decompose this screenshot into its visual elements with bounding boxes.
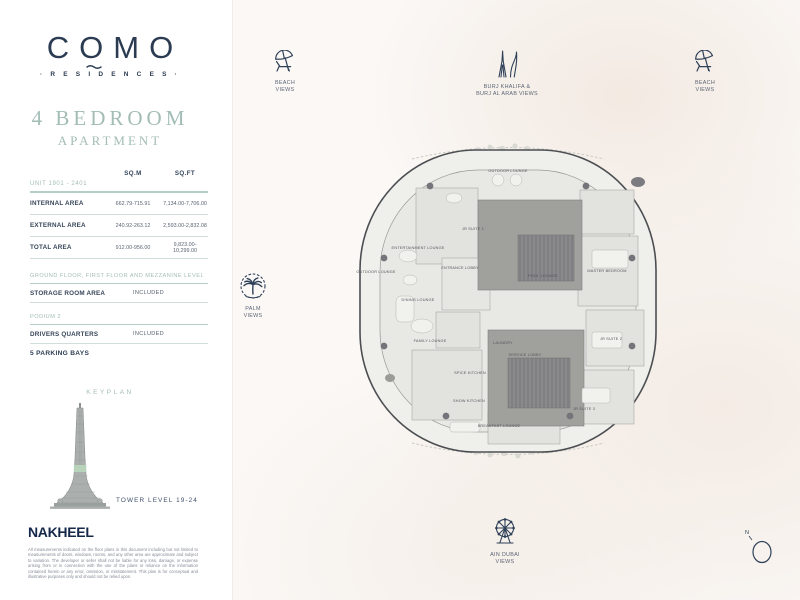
palm-jumeirah-icon: [236, 272, 270, 302]
como-logo-word: COMO: [40, 30, 190, 66]
row-sqft: 2,593.00-2,832.08: [162, 223, 208, 229]
view-marker-label: BEACH VIEWS: [695, 80, 715, 94]
room-label: OUTDOOR LOUNGE: [356, 270, 396, 274]
section-title: PODIUM 2: [30, 312, 208, 325]
view-marker-label: BEACH VIEWS: [275, 80, 295, 94]
view-label-line1: PALM: [244, 306, 263, 313]
room-label: SERVICE LOBBY: [509, 353, 542, 357]
view-marker-label: PALM VIEWS: [244, 306, 263, 320]
burj-khalifa-al-arab-icon: [492, 48, 522, 80]
room-label: JR SUITE 2: [600, 337, 622, 341]
view-marker-beach-left: BEACH VIEWS: [259, 50, 311, 94]
tower-base-platform: [54, 503, 106, 507]
extra-areas: GROUND FLOOR, FIRST FLOOR AND MEZZANINE …: [30, 271, 208, 344]
disclaimer-text: All measurements indicated on the floor …: [28, 547, 198, 579]
row-label: DRIVERS QUARTERS: [30, 331, 133, 338]
row-label: TOTAL AREA: [30, 244, 104, 251]
unit-range-label: UNIT 1901 - 2401: [30, 177, 208, 193]
compass-tick: [749, 536, 752, 540]
section-row: STORAGE ROOM AREA INCLUDED: [30, 284, 208, 303]
view-label-line1: BEACH: [695, 80, 715, 87]
view-label-line1: AIN DUBAI: [490, 552, 520, 559]
como-logo-subtitle: · R E S I D E N C E S ·: [30, 71, 190, 78]
view-label-line2: VIEWS: [695, 87, 715, 94]
north-indicator: N: [736, 524, 780, 570]
table-row: EXTERNAL AREA 240.92-263.12 2,593.00-2,8…: [30, 215, 208, 237]
row-sqft: 7,134.00-7,706.00: [162, 201, 208, 207]
ferris-wheel-icon: [490, 516, 520, 548]
logo-wave-icon: [86, 63, 104, 71]
col-sqft: SQ.FT: [162, 170, 208, 177]
room-label: JR SUITE 3: [573, 407, 595, 411]
view-marker-burj: BURJ KHALIFA & BURJ AL ARAB VIEWS: [457, 48, 557, 98]
room-label: BREAKFAST LOUNGE: [478, 424, 521, 428]
page-title: 4 BEDROOM APARTMENT: [30, 106, 190, 149]
view-marker-label: BURJ KHALIFA & BURJ AL ARAB VIEWS: [476, 84, 538, 98]
row-label: INTERNAL AREA: [30, 200, 104, 207]
row-sqm: 662.79-715.91: [104, 201, 162, 207]
nakheel-logo: NAKHEEL: [28, 524, 94, 540]
row-label: EXTERNAL AREA: [30, 222, 104, 229]
room-label: OUTDOOR LOUNGE: [488, 169, 528, 173]
section-podium: PODIUM 2 DRIVERS QUARTERS INCLUDED: [30, 312, 208, 344]
view-label-line2: VIEWS: [244, 313, 263, 320]
room-label: SHOW KITCHEN: [453, 399, 485, 403]
tower-base-dome: [98, 499, 103, 504]
row-sqft: 9,823.00-10,299.00: [162, 242, 208, 254]
area-table: SQ.M SQ.FT UNIT 1901 - 2401 INTERNAL ARE…: [30, 163, 208, 259]
area-table-header: SQ.M SQ.FT: [30, 163, 208, 177]
beach-umbrella-icon: [272, 50, 298, 76]
floorplan-brochure-page: COMO · R E S I D E N C E S · 4 BEDROOM A…: [0, 0, 800, 600]
view-label-line2: VIEWS: [275, 87, 295, 94]
keyplan-tower-illustration: [48, 402, 112, 514]
row-value: INCLUDED: [133, 331, 208, 337]
keyplan-title: KEYPLAN: [30, 389, 190, 396]
view-label-line2: BURJ AL ARAB VIEWS: [476, 91, 538, 98]
section-row: DRIVERS QUARTERS INCLUDED: [30, 325, 208, 344]
apartment-floorplan: OUTDOOR LOUNGE JR SUITE 1 ENTERTAINMENT …: [350, 140, 666, 462]
room-label: SPICE KITCHEN: [454, 371, 486, 375]
room-label: JR SUITE 1: [462, 227, 484, 231]
room-label: POOL LOUNGE: [528, 274, 558, 278]
tower-level-highlight-band: [74, 465, 86, 472]
title-line1: 4 BEDROOM: [30, 106, 190, 131]
title-line2: APARTMENT: [30, 133, 190, 149]
room-label: FAMILY LOUNGE: [414, 339, 447, 343]
compass-ring: [753, 542, 771, 563]
row-sqm: 240.92-263.12: [104, 223, 162, 229]
view-label-line2: VIEWS: [490, 559, 520, 566]
tower-silhouette: [57, 408, 103, 503]
view-marker-ain-dubai: AIN DUBAI VIEWS: [475, 516, 535, 566]
room-label: DINING LOUNGE: [402, 298, 435, 302]
section-title: GROUND FLOOR, FIRST FLOOR AND MEZZANINE …: [30, 271, 208, 284]
beach-umbrella-icon: [692, 50, 718, 76]
section-ground-floor: GROUND FLOOR, FIRST FLOOR AND MEZZANINE …: [30, 271, 208, 303]
row-value: INCLUDED: [133, 290, 208, 296]
view-label-line1: BURJ KHALIFA &: [476, 84, 538, 91]
col-sqm: SQ.M: [104, 170, 162, 177]
compass-north-label: N: [745, 530, 749, 536]
info-sidebar: COMO · R E S I D E N C E S · 4 BEDROOM A…: [0, 0, 233, 600]
room-label: LAUNDRY: [493, 341, 513, 345]
parking-bays-label: 5 PARKING BAYS: [30, 350, 89, 357]
view-marker-palm: PALM VIEWS: [227, 272, 279, 320]
row-sqm: 912.00-956.00: [104, 245, 162, 251]
room-label: ENTRANCE LOBBY: [441, 266, 479, 270]
room-label: MASTER BEDROOM: [587, 269, 626, 273]
tower-base-dome: [58, 499, 63, 504]
view-marker-beach-right: BEACH VIEWS: [679, 50, 731, 94]
room-label: ENTERTAINMENT LOUNGE: [392, 246, 445, 250]
table-row: TOTAL AREA 912.00-956.00 9,823.00-10,299…: [30, 237, 208, 259]
view-marker-label: AIN DUBAI VIEWS: [490, 552, 520, 566]
row-label: STORAGE ROOM AREA: [30, 290, 133, 297]
tower-base-step: [50, 507, 110, 509]
table-row: INTERNAL AREA 662.79-715.91 7,134.00-7,7…: [30, 193, 208, 215]
view-label-line1: BEACH: [275, 80, 295, 87]
como-logo: COMO · R E S I D E N C E S ·: [30, 30, 190, 78]
tower-level-label: TOWER LEVEL 19-24: [116, 497, 198, 504]
